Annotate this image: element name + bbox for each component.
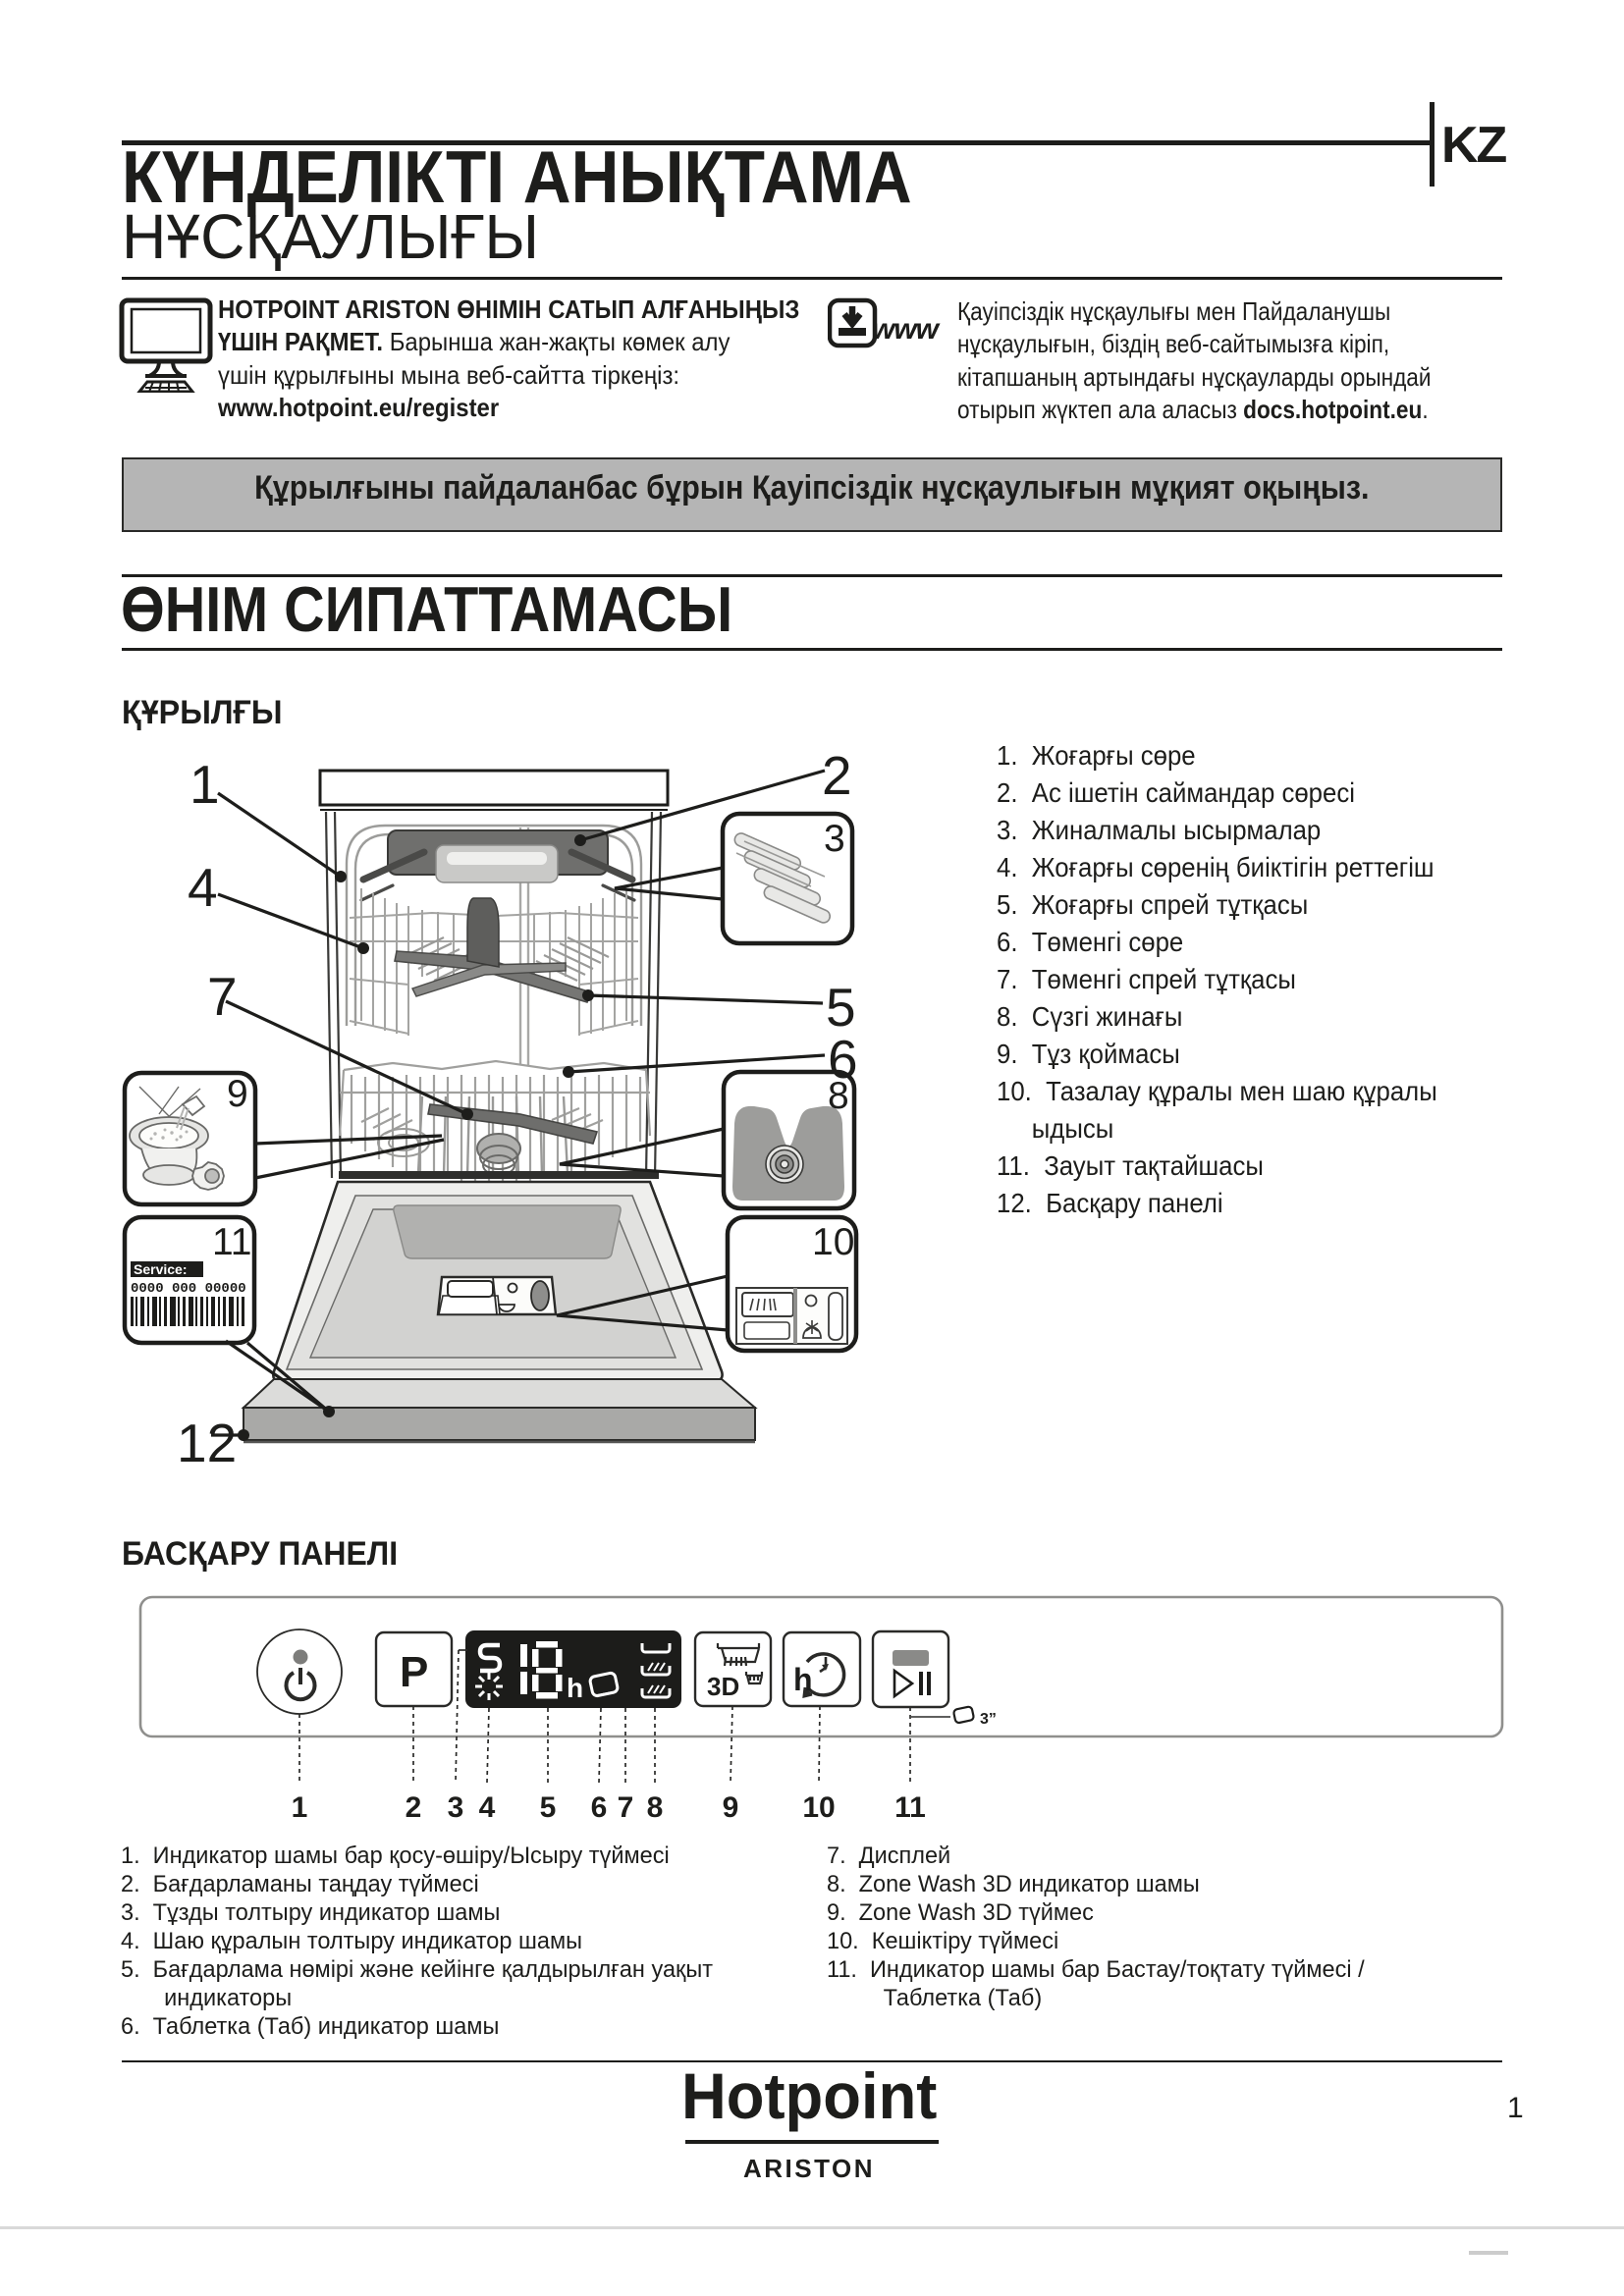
svg-text:2: 2 [406,1791,422,1824]
svg-text:3: 3 [824,818,845,860]
svg-text:9: 9 [227,1073,248,1115]
svg-text:2: 2 [822,745,852,806]
svg-text:11: 11 [894,1791,926,1824]
svg-text:P: P [400,1648,428,1696]
svg-text:h: h [567,1673,583,1703]
svg-text:12: 12 [177,1413,237,1473]
svg-text:10: 10 [812,1221,854,1263]
svg-text:3: 3 [448,1791,464,1824]
svg-text:4: 4 [188,857,218,918]
svg-text:h: h [793,1662,813,1697]
svg-text:7: 7 [618,1791,634,1824]
svg-text:9: 9 [723,1791,739,1824]
svg-text:7: 7 [207,966,238,1027]
svg-text:10: 10 [802,1791,835,1824]
svg-text:www: www [872,313,941,346]
svg-text:Service:: Service: [134,1261,187,1277]
svg-text:3”: 3” [980,1711,997,1728]
svg-text:5: 5 [540,1791,557,1824]
svg-text:8: 8 [828,1075,849,1117]
svg-text:1: 1 [292,1791,308,1824]
svg-text:3D: 3D [707,1672,739,1701]
svg-text:11: 11 [212,1221,252,1263]
svg-text:1: 1 [189,754,220,815]
svg-text:0000 000 00000: 0000 000 00000 [131,1281,246,1297]
svg-text:8: 8 [647,1791,664,1824]
svg-text:6: 6 [591,1791,608,1824]
svg-text:4: 4 [479,1791,496,1824]
